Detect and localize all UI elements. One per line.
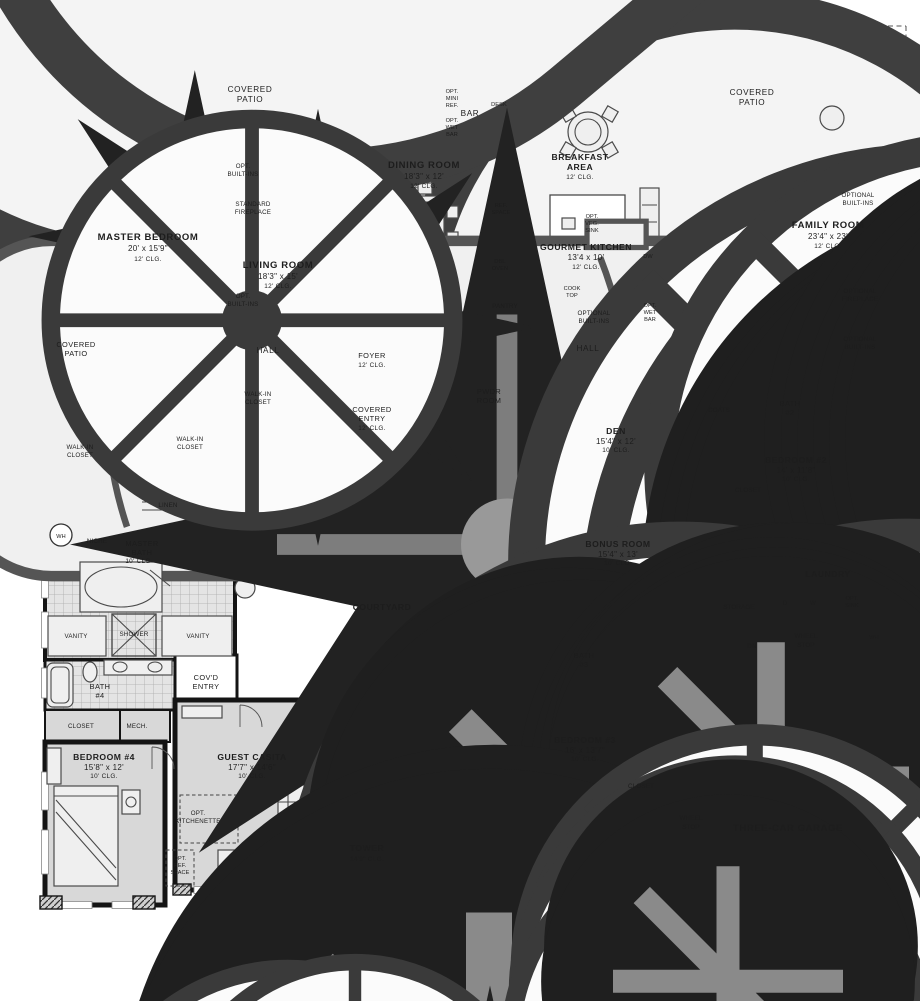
bedroom2-clg: 10' CLG. xyxy=(782,476,809,483)
guest-casita-label: GUEST CASITA xyxy=(217,752,286,762)
opt-mini-ref-label3: REF. xyxy=(446,103,459,109)
covd-entry-label: COV'D xyxy=(194,673,219,682)
opt-wet-bar-label: OPT. xyxy=(446,118,459,124)
closet-bed4-label: CLOSET xyxy=(68,723,94,730)
tower-label: TOWER xyxy=(350,843,385,853)
wh-left-label: WH xyxy=(56,534,66,540)
covered-patio-mid-label: COVERED xyxy=(228,85,273,94)
breakfast-area-clg: 12' CLG. xyxy=(566,174,593,181)
opt-kitchenette-label: OPT. xyxy=(191,810,206,817)
gourmet-kitchen-dims: 13'4 x 10' xyxy=(568,253,605,262)
hall-left-label: HALL xyxy=(257,346,280,355)
wic-left-label2: CLOSET xyxy=(67,452,93,459)
optional-builtins-kitchen-label2: BUILT-INS xyxy=(579,318,610,325)
shower-label: SHOWER xyxy=(119,631,148,638)
coats-label: COATS xyxy=(708,407,730,414)
vanity-right-label: VANITY xyxy=(186,633,209,640)
opt-wet-bar-family-label3: BAR xyxy=(644,317,656,323)
opt-builtins-bottom-label: OPT. xyxy=(236,293,251,300)
opt-wet-bar-family-label: OPT. xyxy=(644,303,657,309)
opt-ref-space-label: OPT. xyxy=(174,856,187,862)
breakfast-area-label: BREAKFAST xyxy=(551,152,608,162)
niche-label: NICHE xyxy=(87,538,107,545)
foyer-clg: 12' CLG. xyxy=(358,362,385,369)
wheel-stop-top-label: WHEEL xyxy=(794,633,817,640)
dn-label: DN xyxy=(747,643,756,650)
bonus-room-clg: 10' CLG. xyxy=(604,560,631,567)
bedroom2-dims: 14' x 11'8" xyxy=(776,466,815,475)
opt-wet-bar-family-label2: WET xyxy=(644,310,657,316)
family-room-label: FAMILY ROOM xyxy=(792,220,865,231)
living-room-clg: 12' CLG. xyxy=(264,283,291,290)
opt-sink-label: OPT. xyxy=(846,596,859,602)
vanity-left-label: VANITY xyxy=(64,633,87,640)
covered-entry-label2: ENTRY xyxy=(359,414,386,423)
master-bath-clg: 10' CLG xyxy=(125,558,150,565)
wheel-stop-left-label: WHEEL xyxy=(679,815,702,822)
floor-plan-page: MASTER BEDROOM 20' x 15'9" 12' CLG. COVE… xyxy=(0,0,920,1001)
floor-plan-drawing: MASTER BEDROOM 20' x 15'9" 12' CLG. COVE… xyxy=(0,0,920,1001)
living-room-label: LIVING ROOM xyxy=(243,260,313,271)
wic-right-label2: CLOSET xyxy=(245,399,271,406)
bar-label: BAR xyxy=(461,109,480,118)
covered-patio-right-label: COVERED xyxy=(730,88,775,97)
garage-label: THREE-CAR GARAGE xyxy=(733,823,843,834)
ref-space-label: REF. xyxy=(495,203,508,209)
bedroom4-clg: 10' CLG. xyxy=(90,773,117,780)
master-bedroom-clg: 12' CLG. xyxy=(134,256,161,263)
optional-builtins-family-bottom2: BUILT-INS xyxy=(845,344,876,351)
dw-label: DW xyxy=(643,254,653,260)
opt-ref-space-label2: REF. xyxy=(174,863,187,869)
wic-left-label: WALK-IN xyxy=(67,444,94,451)
covered-patio-left-label2: PATIO xyxy=(64,349,87,358)
breakfast-area-label2: AREA xyxy=(567,162,593,172)
covered-patio-right-label2: PATIO xyxy=(739,98,765,107)
wic-mid-label2: CLOSET xyxy=(177,444,203,451)
opt-mini-ref-label2: MINI xyxy=(446,96,459,102)
opt-veg-sink-label2: VEG. xyxy=(585,221,599,227)
covered-entry-label: COVERED xyxy=(352,405,391,414)
storage-label: STORAGE xyxy=(723,604,755,611)
bedroom3-clg: 10' CLG. xyxy=(571,756,598,763)
opt-sink-label2: SINK xyxy=(845,603,859,609)
hall-right-label: HALL xyxy=(577,344,600,353)
closet-bed3-label: CLOSET xyxy=(628,783,654,790)
desk-label: DESK xyxy=(491,102,507,108)
den-dims: 15'4" x 12' xyxy=(596,437,636,446)
optional-fireplace-label2: FIREPLACE xyxy=(842,296,878,303)
master-bedroom-dims: 20' x 15'9" xyxy=(128,244,168,253)
opt-veg-sink-label: OPT. xyxy=(586,214,599,220)
bonus-room-label: BONUS ROOM xyxy=(585,539,650,549)
bedroom4-dims: 15'8" x 12' xyxy=(84,763,124,772)
dryer-label: D xyxy=(783,600,788,607)
opt-kitchenette-label2: KITCHENETTE xyxy=(175,818,220,825)
bath3-label2: #3 xyxy=(579,660,588,669)
bath2-label2: #2 xyxy=(785,408,794,417)
opt-builtins-bottom-label2: BUILT-INS xyxy=(228,301,259,308)
linen-label: LINEN xyxy=(158,502,177,509)
family-room-dims: 23'4" x 23' xyxy=(808,232,848,241)
tower-clg: 14'9" CLG. xyxy=(350,856,384,863)
optional-fireplace-label: OPTIONAL xyxy=(844,288,877,295)
mech-label: MECH. xyxy=(127,723,148,730)
ref-space-label2: SPACE xyxy=(491,210,510,216)
master-bedroom-label: MASTER BEDROOM xyxy=(98,232,199,243)
cook-top-label: COOK xyxy=(564,286,581,292)
opt-mini-ref-label: OPT. xyxy=(446,89,459,95)
optional-builtins-kitchen-label: OPTIONAL xyxy=(578,310,611,317)
pwdr-room-label2: ROOM xyxy=(477,396,502,405)
pwdr-room-label: PWDR xyxy=(477,387,501,396)
dining-room-clg: 12' CLG. xyxy=(410,183,437,190)
closet-bed2-label: CLOSET xyxy=(735,487,761,494)
courtyard-label: COURTYARD xyxy=(353,602,412,612)
bath4-label: BATH xyxy=(90,682,111,691)
opt-builtins-top-label2: BUILT-INS xyxy=(228,171,259,178)
covered-patio-mid-label2: PATIO xyxy=(237,95,263,104)
bedroom2-label: BEDROOM #2 xyxy=(765,455,827,465)
family-room-clg: 12' CLG. xyxy=(814,243,841,250)
bedroom4-label: BEDROOM #4 xyxy=(73,752,135,762)
bath3-label: BATH xyxy=(574,651,595,660)
master-bath-label: MASTER xyxy=(125,539,158,548)
laundry-label: LAUNDRY xyxy=(805,569,850,579)
den-label: DEN xyxy=(606,426,626,436)
bath2-label: BATH xyxy=(780,399,801,408)
foyer-label: FOYER xyxy=(358,351,385,360)
guest-casita-clg: 10' CLG. xyxy=(238,773,265,780)
den-clg: 10' CLG. xyxy=(602,447,629,454)
washer-label: W xyxy=(810,600,816,607)
covd-entry-label2: ENTRY xyxy=(193,682,220,691)
optional-builtins-family-bottom: OPTIONAL xyxy=(844,336,877,343)
master-bath-label2: BATH xyxy=(132,548,153,557)
optional-builtins-family-top2: BUILT-INS xyxy=(843,200,874,207)
living-room-dims: 18'3" x 15' xyxy=(258,272,298,281)
tree xyxy=(51,119,454,522)
wic-right-label: WALK-IN xyxy=(245,391,272,398)
bonus-room-dims: 15'4" x 13' xyxy=(598,550,638,559)
opt-wet-bar-label2: WET xyxy=(446,125,459,131)
cook-top-label2: TOP xyxy=(566,293,578,299)
dining-room-label: DINING ROOM xyxy=(388,160,460,171)
standard-fireplace-label2: FIREPLACE xyxy=(235,209,271,216)
opt-veg-sink-label3: SINK xyxy=(585,228,599,234)
covered-patio-left-label: COVERED xyxy=(56,340,95,349)
bedroom3-dims: 16' x 13'7" xyxy=(565,746,605,755)
opt-wet-bar-label3: BAR xyxy=(446,132,458,138)
opt-builtins-top-label: OPT. xyxy=(236,163,251,170)
wheel-stop-left-label2: STOP xyxy=(682,824,700,831)
covered-entry-clg: 12' CLG. xyxy=(358,425,385,432)
guest-casita-dims: 17'7" x 14'6" xyxy=(228,763,276,772)
dining-room-dims: 18'3" x 12' xyxy=(404,172,444,181)
bath4-label2: #4 xyxy=(95,691,104,700)
dbl-oven-label: DBL xyxy=(494,259,505,265)
dbl-oven-label2: OVEN xyxy=(492,266,508,272)
wheel-stop-top-label2: STOP xyxy=(797,642,815,649)
wic-mid-label: WALK-IN xyxy=(177,436,204,443)
optional-builtins-family-top: OPTIONAL xyxy=(842,192,875,199)
gourmet-kitchen-clg: 12' CLG. xyxy=(572,264,599,271)
wh-right-label: WH xyxy=(869,635,879,641)
pantry-label: PANTRY xyxy=(492,303,518,310)
standard-fireplace-label: STANDARD xyxy=(235,201,271,208)
bedroom3-label: BEDROOM #3 xyxy=(554,735,616,745)
opt-ref-space-label3: SPACE xyxy=(170,870,189,876)
gourmet-kitchen-label: GOURMET KITCHEN xyxy=(540,242,632,252)
